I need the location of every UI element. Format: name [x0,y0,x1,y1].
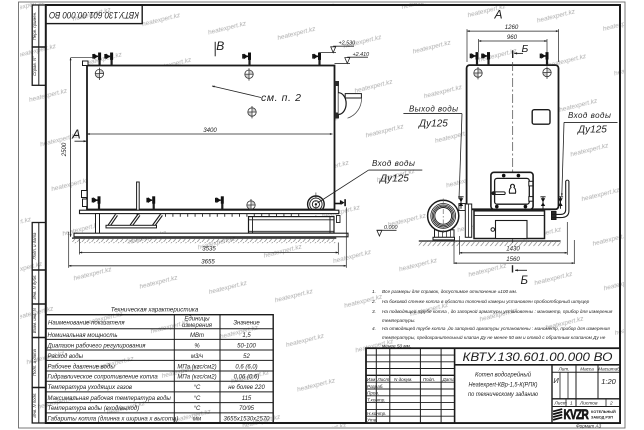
svg-text:м3/ч: м3/ч [191,354,203,360]
svg-text:температуры.: температуры. [382,318,416,323]
svg-text:На подводящей трубе котла ,: На подводящей трубе котла , до запорной … [382,308,613,314]
svg-text:КВТУ.130.601.00.000 ВО: КВТУ.130.601.00.000 ВО [463,350,613,364]
svg-text:Листов: Листов [579,401,598,407]
svg-text:3535: 3535 [202,245,216,252]
svg-text:115: 115 [242,396,252,402]
svg-text:Дата: Дата [442,377,456,382]
svg-text:N докум.: N докум. [394,377,413,382]
svg-text:ЗАВОД РЗП: ЗАВОД РЗП [591,415,613,419]
svg-text:Диапазон рабочего регулировани: Диапазон рабочего регулирования [47,343,147,349]
svg-text:Рабочее давление воды: Рабочее давление воды [48,364,116,370]
svg-text:1: 1 [570,401,573,407]
svg-text:3655: 3655 [201,259,215,266]
svg-text:И: И [553,376,559,385]
svg-text:Все размеры для справок, допус: Все размеры для справок, допустимое откл… [382,289,517,294]
svg-text:КВТУ.130.601.00.000 ВО: КВТУ.130.601.00.000 ВО [49,10,139,20]
svg-text:не более 220: не более 220 [228,385,265,391]
svg-text:1430: 1430 [506,246,520,253]
svg-text:0.000: 0.000 [384,225,398,231]
svg-text:Температура уходящих газов: Температура уходящих газов [48,385,133,391]
svg-text:2.: 2. [371,299,376,304]
svg-text:Выход воды: Выход воды [409,105,458,114]
svg-text:МПа (кгс/см2): МПа (кгс/см2) [177,375,216,381]
svg-text:Гидравлическое сопротивление к: Гидравлическое сопротивление котла [48,375,159,381]
svg-text:На боковой стенке котла в обла: На боковой стенке котла в области топочн… [382,298,590,304]
svg-text:Лист: Лист [554,401,567,407]
svg-text:МПа (кгс/см2): МПа (кгс/см2) [177,364,216,370]
svg-text:1:20: 1:20 [601,377,616,386]
svg-text:3400: 3400 [203,127,217,134]
svg-text:70/95: 70/95 [239,406,255,412]
svg-text:Инв. N подл.: Инв. N подл. [32,392,37,417]
svg-text:Котел водогрейный: Котел водогрейный [475,372,532,379]
svg-text:Утв.: Утв. [367,418,377,423]
svg-text:960: 960 [507,34,518,41]
svg-text:Габариты котла (длинна х ширин: Габариты котла (длинна х ширина х высота… [48,417,179,423]
svg-text:°С: °С [194,396,201,402]
svg-text:Техническая характеристика: Техническая характеристика [111,307,199,314]
svg-text:Расход воды: Расход воды [48,354,84,360]
svg-text:А: А [71,127,80,141]
svg-text:Лист: Лист [377,377,390,382]
svg-text:50-100: 50-100 [237,343,256,349]
svg-text:Значение: Значение [233,321,260,327]
svg-text:Формат А3: Формат А3 [576,423,602,428]
svg-text:Ду125: Ду125 [577,125,607,136]
svg-text:Взам. инв. N: Взам. инв. N [32,307,37,333]
svg-text:В: В [216,39,224,53]
svg-text:Пров.: Пров. [367,391,379,396]
svg-text:52: 52 [243,354,250,360]
svg-text:Heatexpert-КВр-1,5-К(РПК): Heatexpert-КВр-1,5-К(РПК) [469,383,538,389]
svg-text:%: % [194,343,200,349]
svg-text:0,6 (6,0): 0,6 (6,0) [235,364,257,370]
svg-text:Подп. и дата: Подп. и дата [32,348,37,376]
svg-text:Б: Б [522,43,529,55]
svg-text:МВт: МВт [190,333,204,339]
svg-text:температуры, предохранительный: температуры, предохранительный клапан Ду… [382,334,606,340]
svg-text:Вход воды: Вход воды [372,159,415,168]
svg-text:Т.контр.: Т.контр. [367,397,386,402]
svg-text:0,06 (0,6): 0,06 (0,6) [234,375,260,381]
svg-text:°С: °С [194,406,201,412]
svg-text:3655х1530х2570: 3655х1530х2570 [223,417,270,423]
svg-text:Справ. N°: Справ. N° [32,56,37,76]
svg-text:Вход воды: Вход воды [568,111,611,120]
svg-text:KVZR: KVZR [564,407,589,422]
svg-text:Разраб.: Разраб. [367,384,384,389]
svg-text:Номинальная мощность: Номинальная мощность [48,333,118,339]
svg-text:4.: 4. [372,326,376,331]
svg-text:Н.контр.: Н.контр. [367,411,386,416]
svg-text:Б: Б [521,275,529,287]
svg-text:мм: мм [193,417,201,423]
svg-text:Ду125: Ду125 [379,174,409,185]
svg-text:1560: 1560 [506,256,520,263]
svg-text:2: 2 [609,401,613,407]
svg-text:2500: 2500 [61,142,68,157]
svg-text:+2.410: +2.410 [353,52,370,58]
svg-text:°С: °С [194,385,201,391]
svg-text:Масштаб: Масштаб [598,367,620,372]
svg-text:Наименование показателя: Наименование показателя [48,321,125,327]
svg-text:1.: 1. [372,289,376,294]
svg-text:+2.530: +2.530 [339,41,356,47]
svg-text:Максимальная рабочая температу: Максимальная рабочая температура воды [48,396,172,402]
svg-text:Изм: Изм [367,377,376,382]
svg-text:Ду125: Ду125 [418,119,448,130]
svg-text:Подп.: Подп. [423,377,435,382]
svg-text:Температура воды (вход/выход): Температура воды (вход/выход) [48,406,140,412]
svg-text:Инв. N дубл.: Инв. N дубл. [32,275,37,300]
svg-text:Лит.: Лит. [558,367,570,372]
svg-text:На отводящей трубе котла ,до з: На отводящей трубе котла ,до запорной ар… [382,325,610,331]
svg-text:Перв. примен.: Перв. примен. [32,12,37,41]
svg-text:А: А [494,8,503,22]
svg-text:измерения: измерения [182,323,213,329]
svg-text:КОТЕЛЬНЫЙ: КОТЕЛЬНЫЙ [591,410,616,414]
svg-text:1260: 1260 [505,24,519,31]
svg-text:по техническому заданию: по техническому заданию [468,392,538,398]
svg-text:см. п. 2: см. п. 2 [261,92,302,104]
svg-text:3.: 3. [372,309,376,314]
svg-text:Подп. и дата: Подп. и дата [32,232,37,260]
svg-text:Масса: Масса [580,367,594,372]
svg-text:1,5: 1,5 [242,333,251,339]
svg-text:Единицы: Единицы [184,317,210,323]
